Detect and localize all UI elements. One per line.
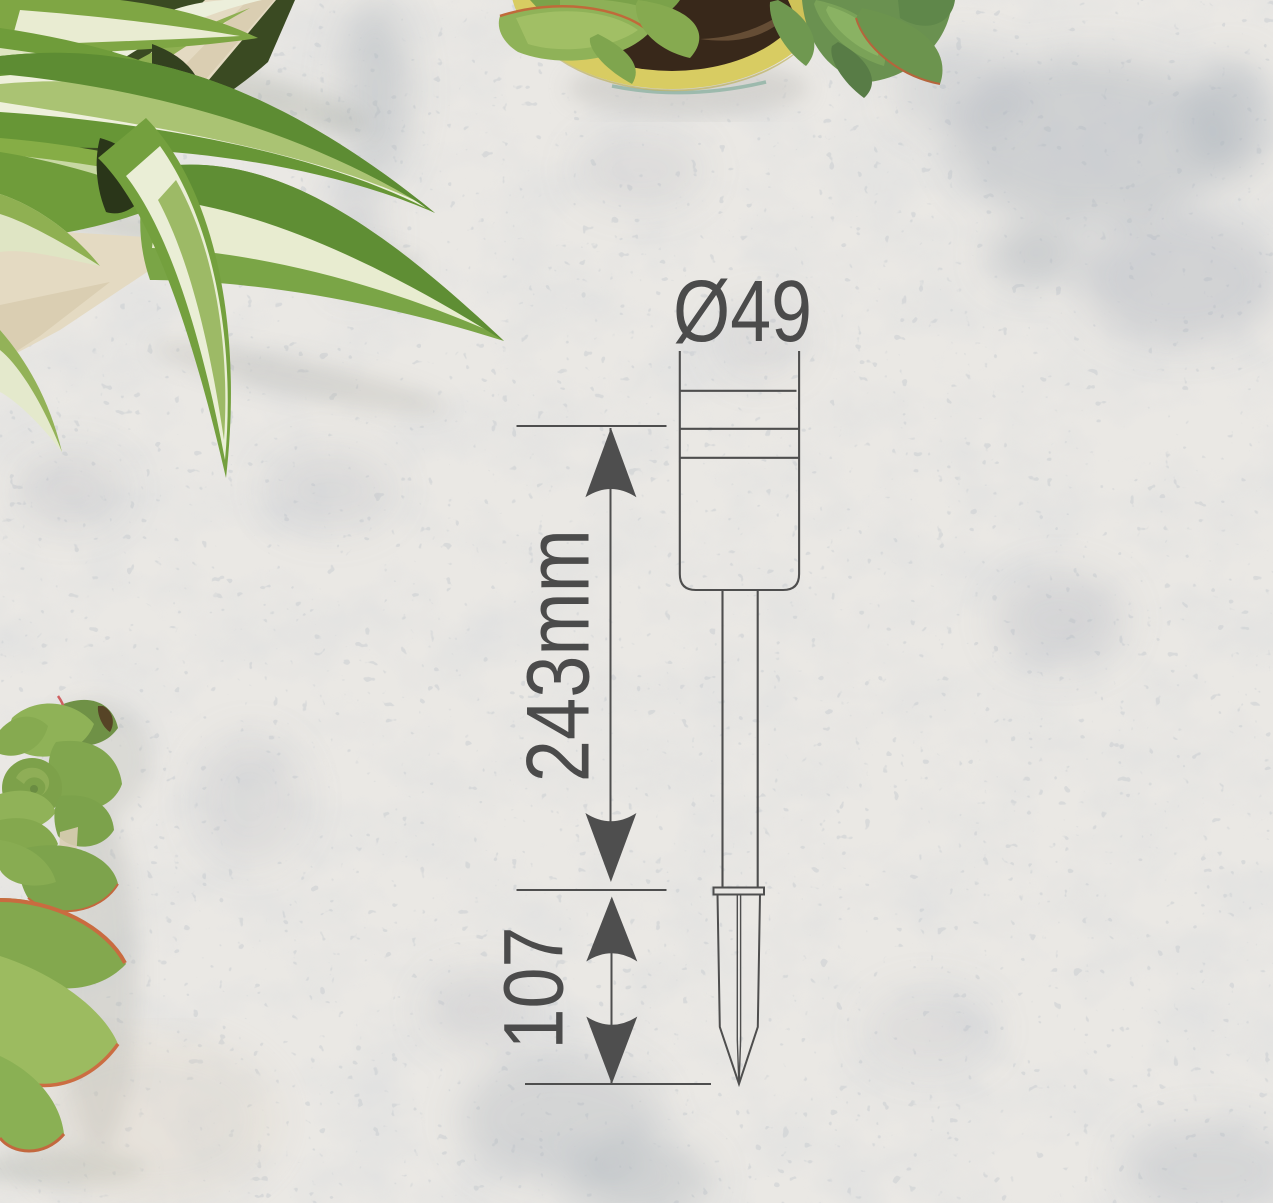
svg-text:243mm: 243mm [508,529,608,782]
svg-text:107: 107 [487,927,581,1050]
svg-text:Ø49: Ø49 [673,263,812,360]
